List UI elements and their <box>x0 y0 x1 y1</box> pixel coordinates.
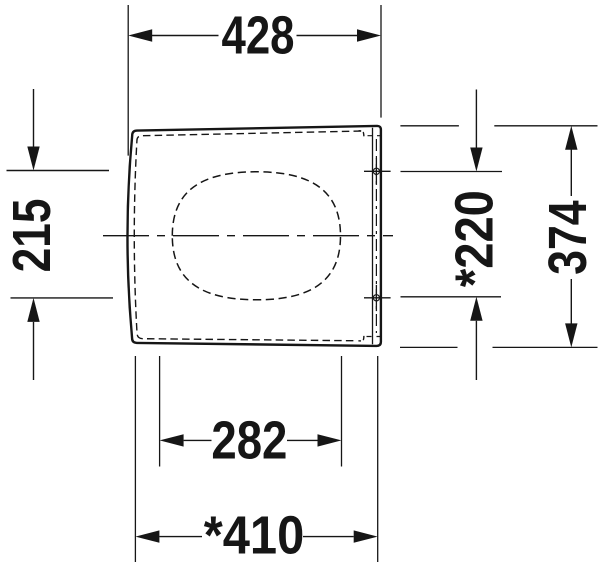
svg-text:428: 428 <box>222 6 295 65</box>
svg-text:374: 374 <box>539 200 598 275</box>
svg-text:215: 215 <box>3 198 62 272</box>
svg-text:282: 282 <box>211 411 287 470</box>
svg-text:*410: *410 <box>204 506 305 565</box>
svg-text:*220: *220 <box>446 190 505 287</box>
